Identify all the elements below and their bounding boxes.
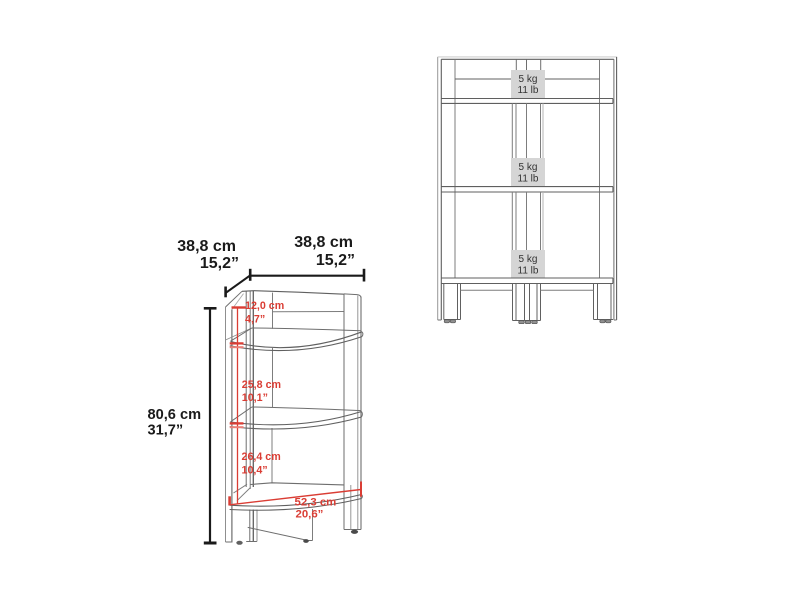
svg-text:4,7”: 4,7” [245,314,265,326]
svg-text:5 kg: 5 kg [519,74,538,85]
svg-text:15,2”: 15,2” [316,252,355,269]
svg-text:11 lb: 11 lb [518,173,539,184]
svg-text:52,3 cm: 52,3 cm [295,497,337,509]
svg-text:38,8 cm: 38,8 cm [294,234,353,251]
svg-text:80,6 cm: 80,6 cm [148,407,202,423]
svg-text:20,6”: 20,6” [296,509,324,521]
svg-text:11 lb: 11 lb [518,265,539,276]
svg-text:5 kg: 5 kg [519,254,538,265]
svg-text:10,1”: 10,1” [242,392,268,404]
svg-text:12,0 cm: 12,0 cm [245,300,284,312]
svg-text:11 lb: 11 lb [518,85,539,96]
svg-text:25,8 cm: 25,8 cm [242,379,281,391]
svg-text:31,7”: 31,7” [148,423,184,439]
svg-text:10,4”: 10,4” [242,464,268,476]
svg-text:26,4 cm: 26,4 cm [242,451,281,463]
svg-text:15,2”: 15,2” [200,255,239,272]
svg-text:5 kg: 5 kg [519,162,538,173]
svg-text:38,8 cm: 38,8 cm [177,238,236,255]
